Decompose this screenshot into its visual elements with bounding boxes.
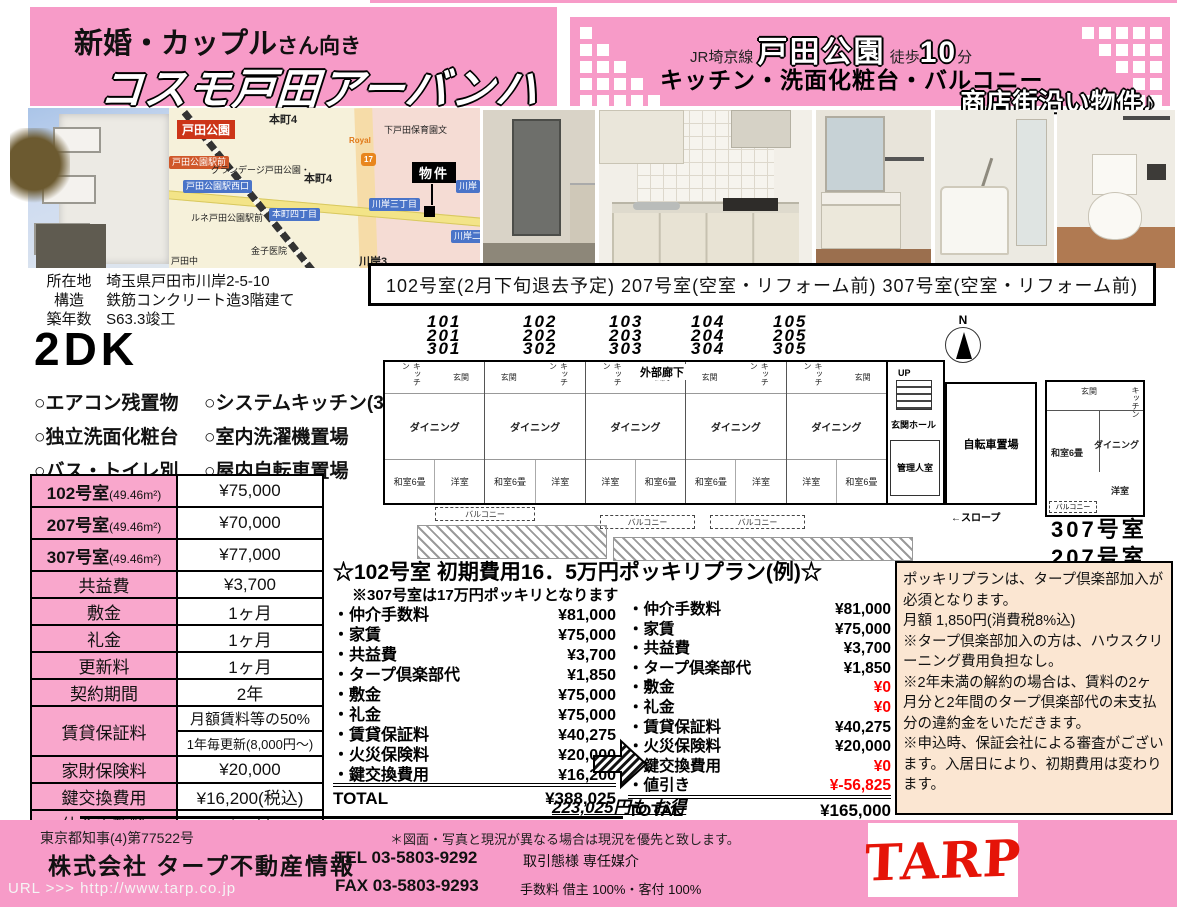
location-map: 戸田公園 戸田公園駅前 戸田公園駅西口 グランデージ戸田公園・ 本町4 本町4 … [169, 108, 480, 268]
yoshitsu-label: 洋室 [1111, 484, 1129, 497]
row-value: 1ヶ月 [177, 598, 323, 625]
map-property-label: 物件 [412, 162, 456, 183]
map-property-marker [424, 206, 435, 217]
deco-squares [580, 95, 660, 107]
notice-line: ※2年未満の解約の場合は、賃料の2ヶ月分と2年間のタープ倶楽部代の未支払分の違約… [903, 673, 1165, 735]
washitsu-label: 和室6畳 [686, 460, 736, 503]
building-exterior-photo [28, 108, 169, 268]
feature-item: ○エアコン残置物 [34, 388, 204, 415]
yoshitsu-label: 洋室 [736, 460, 785, 503]
entrance-hall-area: UP 玄関ホール 管理人室 [888, 360, 945, 505]
info-row-structure: 構造 鉄筋コンクリート造3階建て [36, 289, 295, 310]
price-table: 102号室(49.46m²) ¥75,000 207号室(49.46m²) ¥7… [30, 474, 324, 838]
entrance-label: 玄関 [1081, 386, 1097, 397]
row-value-2: 1年毎更新(8,000円〜) [177, 731, 323, 756]
mirror-shape [825, 116, 885, 192]
table-row: 207号室(49.46m²) ¥70,000 [31, 507, 323, 539]
row-label: 家財保険料 [31, 756, 177, 783]
lower-cabinet [612, 213, 799, 268]
table-row: 契約期間 2年 [31, 679, 323, 706]
row-label: 307号室 [47, 548, 109, 567]
floorplan-unit: キッチン玄関 ダイニング 洋室和室6畳 [586, 362, 686, 503]
deco-squares [580, 44, 609, 56]
manager-room-label: 管理人室 [890, 440, 940, 496]
yoshitsu-label: 洋室 [586, 460, 636, 503]
row-value: ¥75,000 [177, 475, 323, 507]
company-url: URL >>> http://www.tarp.co.jp [8, 880, 236, 897]
washitsu-label: 和室6畳 [485, 460, 535, 503]
bathtub-shape [940, 186, 1009, 256]
kitchen-label: キッチン [601, 362, 623, 393]
map-label-honcho4-top: 本町4 [269, 111, 297, 127]
top-border-line [370, 0, 1177, 3]
towel-bar [1123, 116, 1170, 120]
cost-item: ・家賃¥75,000 [628, 617, 891, 637]
row-label-sub: (49.46m²) [109, 552, 161, 566]
row-label: 敷金 [31, 598, 177, 625]
room-number-stack: 102202302 [523, 315, 557, 356]
deco-squares [1116, 61, 1162, 73]
washstand-photo [816, 110, 931, 268]
entrance-shadow [36, 224, 106, 268]
cost-item: ・火災保険料¥20,000 [628, 734, 891, 754]
fee-text: 手数料 借主 100%・客付 100% [520, 879, 701, 898]
cost-item: ・鍵交換費用¥0 [628, 754, 891, 774]
map-label-royal: Royal [349, 136, 371, 145]
sink-shape [633, 202, 680, 210]
footer: 東京都知事(4)第77522号 株式会社 タープ不動産情報 URL >>> ht… [0, 820, 1177, 907]
map-station-box: 戸田公園 [177, 120, 235, 139]
kitchen-photo [599, 110, 812, 268]
tel-number: TEL 03-5803-9292 [335, 848, 477, 868]
table-row: 共益費 ¥3,700 [31, 571, 323, 598]
washitsu-label: 和室6畳 [385, 460, 435, 503]
door-shape [512, 119, 561, 236]
row-label-sub: (49.46m²) [109, 520, 161, 534]
slope-label: ←スロープ [951, 509, 1000, 524]
map-label-kawagishi3chome: 川岸三丁目 [369, 198, 420, 211]
table-row: 更新料 1ヶ月 [31, 652, 323, 679]
cost-list-after: ・仲介手数料¥81,000 ・家賃¥75,000 ・共益費¥3,700 ・タープ… [628, 597, 891, 821]
flyer-canvas: 新婚・カップルさん向き コスモ戸田アーバンハイム JR埼京線 戸田公園 徒歩10… [0, 0, 1177, 918]
table-row: 307号室(49.46m²) ¥77,000 [31, 539, 323, 571]
balcony-label: バルコニー [710, 515, 805, 529]
floorplan-unit: キッチン玄関 ダイニング 和室6畳洋室 [385, 362, 485, 503]
map-label-nishiguchi: 戸田公園駅西口 [183, 180, 252, 193]
cooktop-shape [723, 198, 778, 211]
building-outline: キッチン玄関 ダイニング 和室6畳洋室 玄関キッチン ダイニング 和室6畳洋室 … [383, 360, 888, 505]
tree-shape [10, 128, 70, 218]
row-label: 鍵交換費用 [31, 783, 177, 810]
table-row: 家財保険料 ¥20,000 [31, 756, 323, 783]
company-name: 株式会社 タープ不動産情報 [48, 847, 355, 881]
fax-number: FAX 03-5803-9293 [335, 876, 479, 896]
washitsu-label: 和室6畳 [837, 460, 886, 503]
vanity-cabinet [821, 205, 902, 249]
layout-type: 2DK [34, 322, 138, 376]
cost-item: ・仲介手数料¥81,000 [333, 601, 616, 621]
plan-title: ☆102号室 初期費用16．5万円ポッキリプラン(例)☆ [333, 556, 822, 586]
notice-line: ※申込時、保証会社による審査がございます。入居日により、初期費用は変わります。 [903, 734, 1165, 796]
room-number-stack: 104204304 [691, 315, 725, 356]
row-value: ¥77,000 [177, 539, 323, 571]
table-row: 賃貸保証料 月額賃料等の50% [31, 706, 323, 731]
bath-mirror-panel [1016, 119, 1047, 245]
deal-type: 取引態様 専任媒介 [523, 851, 639, 871]
toilet-tank [1092, 154, 1137, 195]
deco-squares [580, 27, 592, 39]
map-label-kawagishi2: 川岸二 [451, 230, 480, 243]
license-number: 東京都知事(4)第77522号 [40, 828, 194, 848]
cost-item: ・共益費¥3,700 [628, 636, 891, 656]
north-label: N [943, 313, 983, 327]
map-label-kaneko: 金子医院 [251, 244, 287, 257]
room-number-stack: 105205305 [773, 315, 807, 356]
up-label: UP [898, 368, 911, 378]
row-label: 207号室 [47, 516, 109, 535]
cost-item-discount: ・値引き¥-56,825 [628, 773, 891, 793]
table-row: 102号室(49.46m²) ¥75,000 [31, 475, 323, 507]
balcony-label: バルコニー [1049, 501, 1097, 513]
washitsu-label: 和室6畳 [636, 460, 685, 503]
room-number-stack: 103203303 [609, 315, 643, 356]
map-marker-arrow [431, 184, 433, 205]
yoshitsu-label: 洋室 [536, 460, 585, 503]
row-label: 102号室 [47, 484, 109, 503]
notice-box: ポッキリプランは、タープ倶楽部加入が必須となります。 月額 1,850円(消費税… [895, 561, 1173, 815]
tarp-logo-text: TARP [864, 828, 1022, 893]
floorplan-unit: キッチン玄関 ダイニング 洋室和室6畳 [787, 362, 886, 503]
hall-label: 玄関ホール [891, 418, 936, 431]
dining-label: ダイニング [485, 394, 584, 459]
feature-item: ○独立洗面化粧台 [34, 422, 204, 449]
floorplan-unit: 玄関キッチン ダイニング 和室6畳洋室 [485, 362, 585, 503]
table-row: 礼金 1ヶ月 [31, 625, 323, 652]
row-label: 契約期間 [31, 679, 177, 706]
deco-squares [580, 78, 643, 90]
dining-label: ダイニング [1094, 438, 1139, 451]
entrance-label: 玄関 [855, 372, 871, 383]
footer-divider [80, 816, 623, 819]
row-label: 更新料 [31, 652, 177, 679]
kitchen-label: キッチン [802, 362, 824, 393]
notice-line: 月額 1,850円(消費税8%込) [903, 611, 1165, 632]
room-status-banner: 102号室(2月下旬退去予定) 207号室(空室・リフォーム前) 307号室(空… [368, 263, 1156, 306]
dining-label: ダイニング [787, 394, 886, 459]
kitchen-label: キッチン [1130, 386, 1141, 418]
yoshitsu-label: 洋室 [787, 460, 837, 503]
map-label-honcho4chome: 本町四丁目 [269, 208, 320, 221]
info-row-address: 所在地 埼玉県戸田市川岸2-5-10 [36, 270, 270, 291]
kitchen-label: キッチン [547, 362, 569, 393]
row-value: ¥16,200(税込) [177, 783, 323, 810]
cost-item: ・仲介手数料¥81,000 [628, 597, 891, 617]
room-number-stack: 101201301 [427, 315, 461, 356]
dining-label: ダイニング [686, 394, 785, 459]
range-hood [731, 110, 791, 148]
map-label-kawagishi: 川岸 [456, 180, 480, 193]
entrance-photo [483, 110, 595, 268]
header-right-banner: JR埼京線 戸田公園 徒歩10分 キッチン・洗面化粧台・バルコニー 商店街沿い物… [570, 17, 1170, 106]
row-value: ¥20,000 [177, 756, 323, 783]
dining-label: ダイニング [586, 394, 685, 459]
deco-squares [1082, 27, 1162, 39]
info-value: 鉄筋コンクリート造3階建て [106, 292, 294, 309]
toilet-bowl [1088, 192, 1142, 239]
toilet-photo [1057, 110, 1175, 268]
floor-plan: 101201301 102202302 103203303 104204304 … [375, 313, 1175, 568]
towel-bar [885, 157, 924, 161]
detail-unit-plan: 玄関 キッチン ダイニング 和室6畳 洋室 バルコニー [1045, 380, 1145, 517]
row-value: 1ヶ月 [177, 625, 323, 652]
cost-item: ・礼金¥0 [628, 695, 891, 715]
washitsu-label: 和室6畳 [1051, 446, 1083, 459]
map-route17-shield: 17 [361, 153, 376, 166]
entrance-label: 玄関 [453, 372, 469, 383]
kitchen-label: キッチン [400, 362, 422, 393]
table-row: 敷金 1ヶ月 [31, 598, 323, 625]
info-label: 所在地 [36, 270, 102, 291]
bathroom-photo [935, 110, 1054, 268]
basin-counter [821, 192, 902, 205]
deco-squares [1099, 44, 1162, 56]
row-value: ¥3,700 [177, 571, 323, 598]
table-row: 鍵交換費用 ¥16,200(税込) [31, 783, 323, 810]
paper-holder [1147, 164, 1166, 180]
cost-item: ・賃貸保証料¥40,275 [628, 715, 891, 735]
row-label: 賃貸保証料 [31, 706, 177, 756]
corridor-label: 外部廊下 [637, 364, 687, 380]
row-label: 礼金 [31, 625, 177, 652]
entrance-label: 玄関 [501, 372, 517, 383]
notice-line: ※タープ倶楽部加入の方は、ハウスクリーニング費用負担なし。 [903, 632, 1165, 673]
company-logo: TARP [868, 823, 1018, 897]
disclaimer: ＊図面・写真と現況が異なる場合は現況を優先と致します。 [390, 829, 740, 848]
stairs-icon [896, 380, 932, 410]
header-left-banner: 新婚・カップルさん向き コスモ戸田アーバンハイム [30, 7, 557, 106]
entrance-label: 玄関 [702, 372, 718, 383]
savings-text: 223,025円も お得 [552, 793, 686, 818]
compass-needle-icon [956, 332, 972, 359]
counter-shape [570, 183, 595, 243]
map-label-honcho4: 本町4 [304, 170, 332, 186]
cost-item: ・敷金¥0 [628, 675, 891, 695]
ground-hatch [417, 525, 607, 559]
kitchen-label: キッチン [748, 362, 770, 393]
row-value: ¥70,000 [177, 507, 323, 539]
info-value: 埼玉県戸田市川岸2-5-10 [106, 273, 269, 290]
yoshitsu-label: 洋室 [435, 460, 484, 503]
feature-list: ○エアコン残置物 ○システムキッチン(3口) ○独立洗面化粧台 ○室内洗濯機置場… [34, 388, 374, 483]
bicycle-area: 自転車置場 [945, 382, 1037, 505]
map-label-grandage: グランデージ戸田公園・ [211, 163, 310, 176]
notice-line: ポッキリプランは、タープ倶楽部加入が必須となります。 [903, 570, 1165, 611]
dining-label: ダイニング [385, 394, 484, 459]
row-label-sub: (49.46m²) [109, 488, 161, 502]
row-label: 共益費 [31, 571, 177, 598]
upper-cabinet [599, 110, 684, 164]
map-label-todanaka: 戸田中 [171, 254, 198, 267]
info-label: 構造 [36, 289, 102, 310]
cost-item: ・タープ倶楽部代¥1,850 [628, 656, 891, 676]
map-label-rune: ルネ戸田公園駅前 [191, 211, 263, 224]
compass: N [943, 313, 983, 367]
row-value: 2年 [177, 679, 323, 706]
balcony-label: バルコニー [435, 507, 535, 521]
savings-arrow-icon [592, 735, 648, 793]
map-label-hoikuen: 下戸田保育園文 [384, 123, 447, 136]
cost-list-before: ・仲介手数料¥81,000 ・家賃¥75,000 ・共益費¥3,700 ・タープ… [333, 601, 616, 809]
room-id-307: 307号室 [1051, 516, 1147, 544]
row-value: 月額賃料等の50% [177, 706, 323, 731]
balcony-label: バルコニー [600, 515, 695, 529]
deco-squares [580, 61, 626, 73]
compass-circle [945, 327, 981, 363]
floorplan-unit: 玄関キッチン ダイニング 和室6畳洋室 [686, 362, 786, 503]
row-value: 1ヶ月 [177, 652, 323, 679]
